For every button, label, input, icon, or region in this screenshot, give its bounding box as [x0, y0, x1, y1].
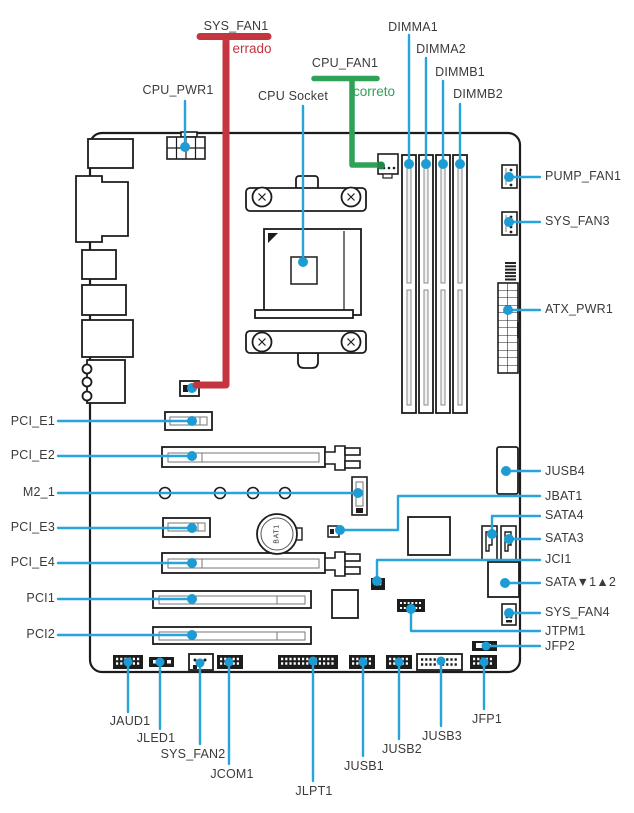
chipset-large: [408, 517, 450, 555]
cpu-socket: [246, 176, 366, 368]
label-pump-fan1: PUMP_FAN1: [545, 170, 621, 183]
label-m2-1: M2_1: [23, 486, 55, 499]
label-jaud1: JAUD1: [110, 715, 151, 728]
motherboard-drawing: BAT1: [0, 0, 634, 813]
label-sys-fan1: SYS_FAN1: [204, 20, 269, 33]
chip-small: [332, 590, 358, 618]
battery-text: BAT1: [274, 524, 281, 543]
annotation-correct: correto: [353, 85, 395, 99]
label-sys-fan3: SYS_FAN3: [545, 215, 610, 228]
label-pci2: PCI2: [26, 628, 55, 641]
label-pci-e1: PCI_E1: [11, 415, 55, 428]
label-jfp2: JFP2: [545, 640, 575, 653]
label-dimma1: DIMMA1: [388, 21, 438, 34]
label-jlpt1: JLPT1: [295, 785, 332, 798]
label-sys-fan4: SYS_FAN4: [545, 606, 610, 619]
label-jusb4: JUSB4: [545, 465, 585, 478]
label-cpu-pwr1: CPU_PWR1: [142, 84, 213, 97]
label-pci-e3: PCI_E3: [11, 521, 55, 534]
label-pci1: PCI1: [26, 592, 55, 605]
label-jled1: JLED1: [137, 732, 176, 745]
label-jusb1: JUSB1: [344, 760, 384, 773]
label-sata4: SATA4: [545, 509, 584, 522]
jlpt1-header: [278, 655, 338, 669]
label-sata12: SATA▼1▲2: [545, 576, 616, 589]
label-jtpm1: JTPM1: [545, 625, 586, 638]
label-pci-e2: PCI_E2: [11, 449, 55, 462]
label-cpu-fan1: CPU_FAN1: [312, 57, 378, 70]
label-cpu-socket: CPU Socket: [258, 90, 328, 103]
label-jbat1: JBAT1: [545, 490, 583, 503]
label-jusb3: JUSB3: [422, 730, 462, 743]
label-dimma2: DIMMA2: [416, 43, 466, 56]
annotation-wrong: errado: [232, 42, 271, 56]
label-sata3: SATA3: [545, 532, 584, 545]
label-sys-fan2: SYS_FAN2: [161, 748, 226, 761]
label-jci1: JCI1: [545, 553, 572, 566]
label-jfp1: JFP1: [472, 713, 502, 726]
label-dimmb1: DIMMB1: [435, 66, 485, 79]
label-jusb2: JUSB2: [382, 743, 422, 756]
label-pci-e4: PCI_E4: [11, 556, 55, 569]
label-dimmb2: DIMMB2: [453, 88, 503, 101]
label-atx-pwr1: ATX_PWR1: [545, 303, 613, 316]
label-jcom1: JCOM1: [210, 768, 253, 781]
motherboard-diagram: BAT1: [0, 0, 634, 813]
